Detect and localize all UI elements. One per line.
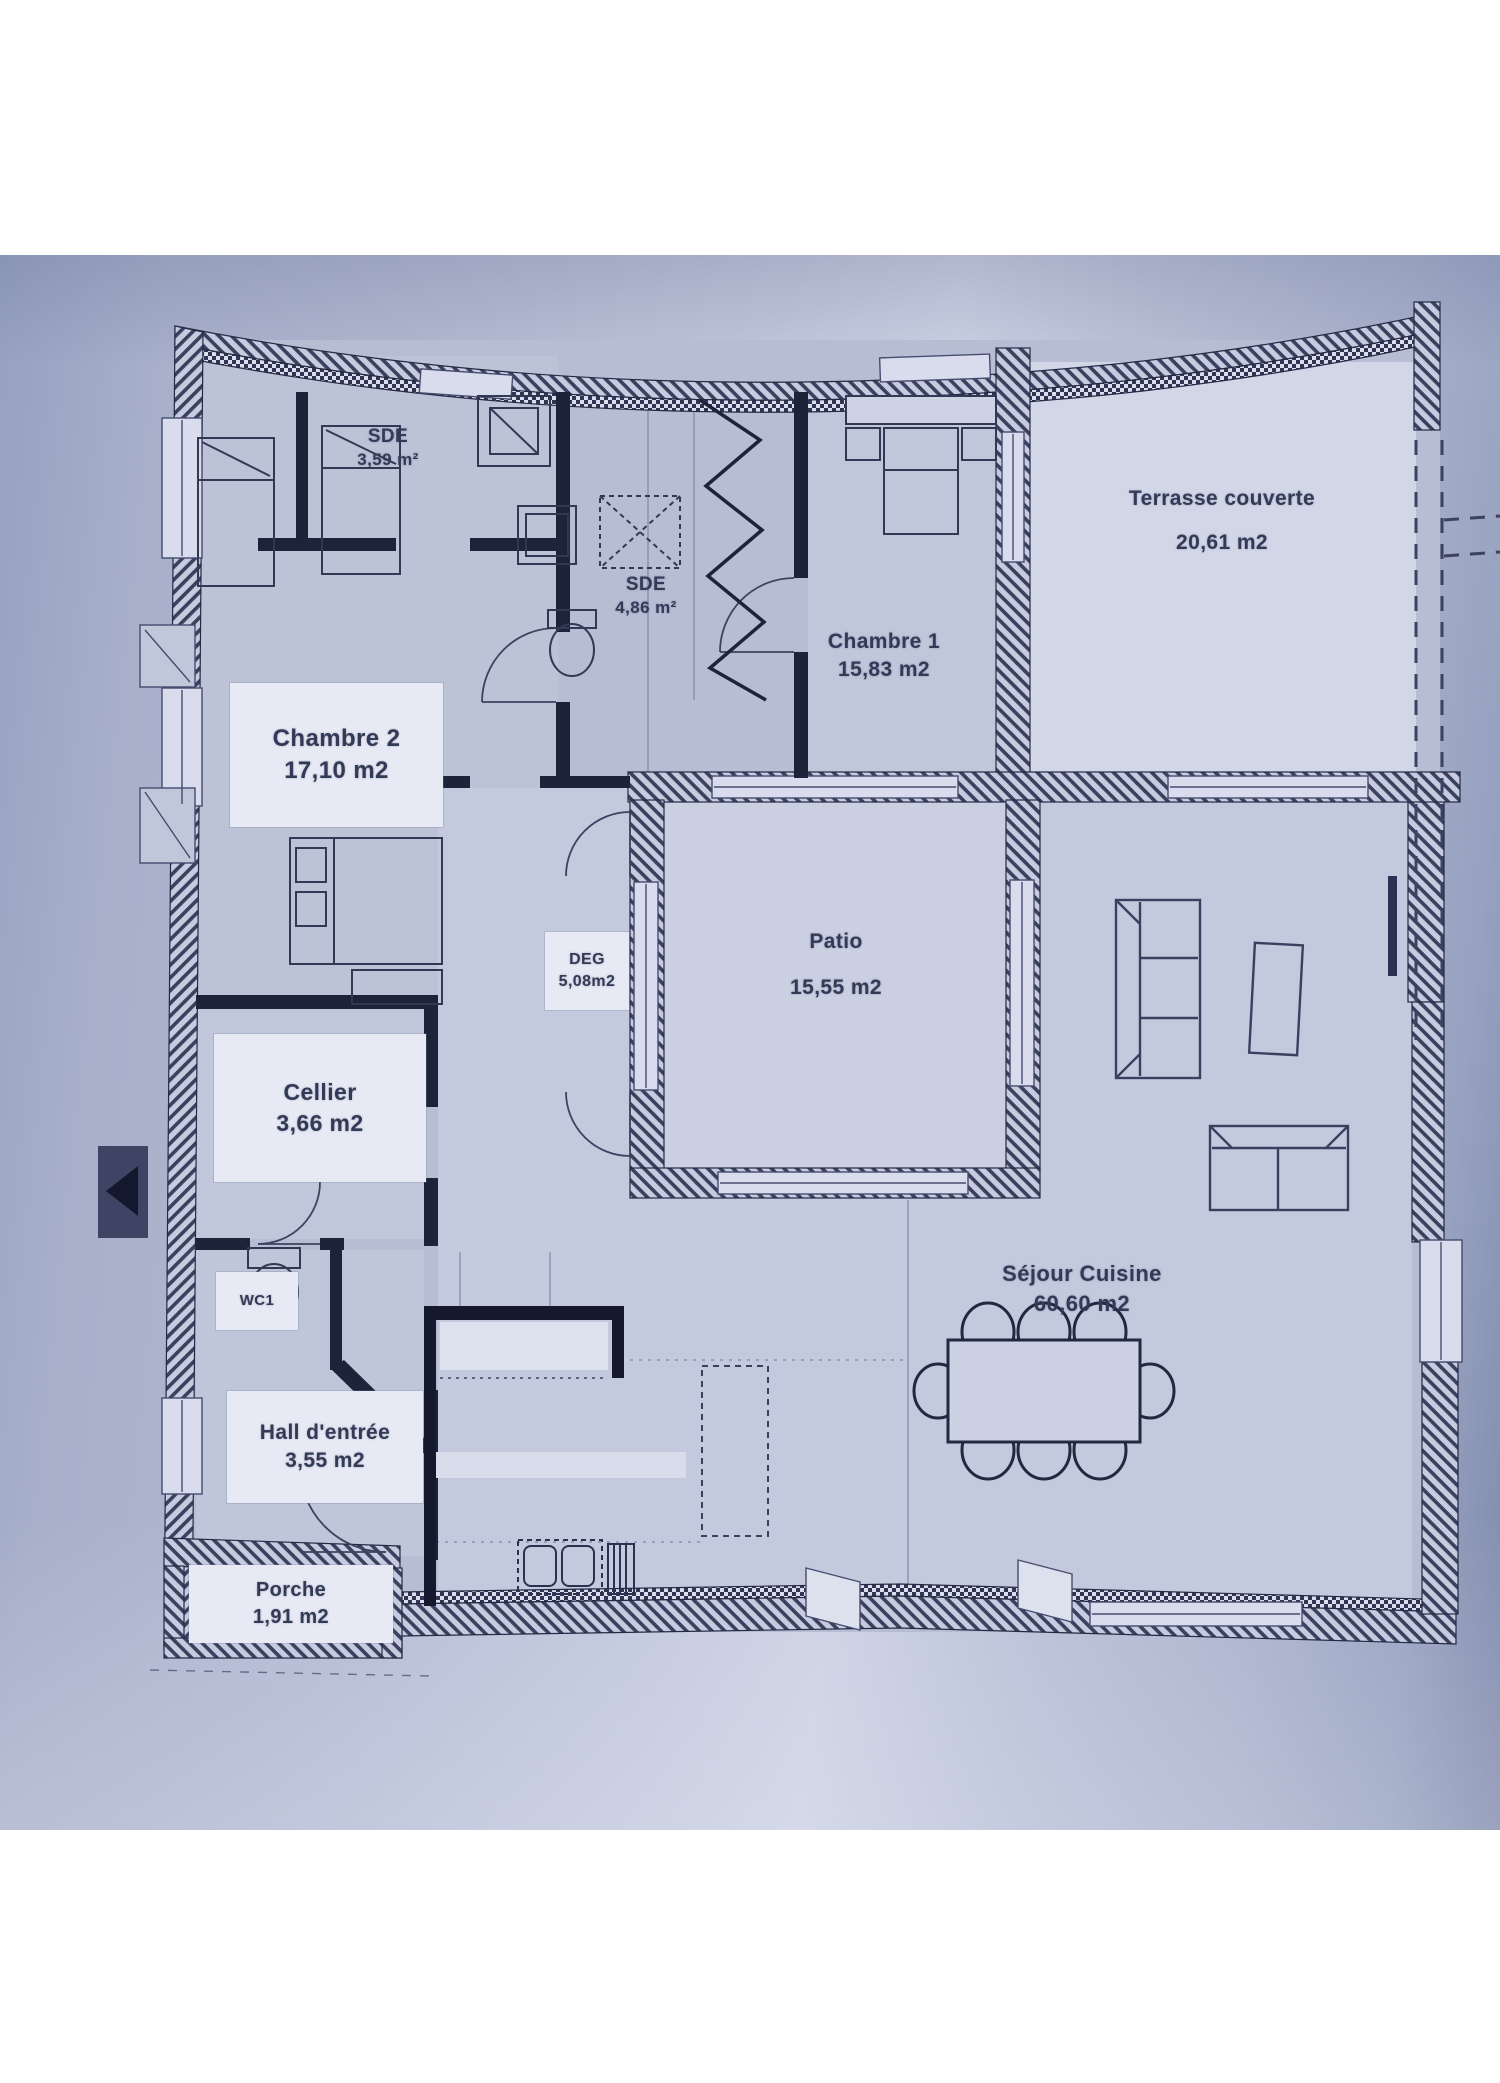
room-area: 3,55 m2 — [285, 1447, 365, 1475]
room-name: SDE — [368, 424, 408, 450]
room-area: 3,66 m2 — [276, 1108, 363, 1139]
room-name: Porche — [256, 1577, 326, 1604]
floor-plan-screenshot: SDE 3,59 m² SDE 4,86 m² Chambre 1 15,83 … — [0, 0, 1500, 2083]
room-label-terrasse: Terrasse couverte 20,61 m2 — [1090, 478, 1354, 564]
room-area: 5,08m2 — [559, 971, 616, 993]
room-label-chambre-1: Chambre 1 15,83 m2 — [792, 626, 976, 686]
room-area: 1,91 m2 — [253, 1604, 329, 1631]
kitchen-cabinet — [440, 1322, 608, 1370]
room-area: 20,61 m2 — [1176, 529, 1268, 557]
room-name: Patio — [809, 928, 862, 956]
kitchen-counter — [436, 1452, 686, 1478]
room-area: 15,55 m2 — [790, 974, 882, 1002]
sliding-door-frame — [1388, 876, 1397, 976]
room-label-patio: Patio 15,55 m2 — [774, 922, 898, 1008]
room-name: Terrasse couverte — [1129, 485, 1315, 513]
entry-arrow-icon — [98, 1146, 148, 1238]
room-label-deg: DEG 5,08m2 — [545, 932, 629, 1010]
room-name: Chambre 2 — [273, 723, 401, 755]
room-name: DEG — [569, 949, 605, 971]
room-label-chambre-2: Chambre 2 17,10 m2 — [230, 683, 443, 827]
room-label-hall: Hall d'entrée 3,55 m2 — [227, 1391, 423, 1503]
room-label-wc1: WC1 — [216, 1272, 298, 1330]
room-area: 60,60 m2 — [1034, 1289, 1130, 1319]
room-area: 17,10 m2 — [284, 755, 389, 787]
room-label-sde-2: SDE 4,86 m² — [580, 568, 712, 624]
room-name: Chambre 1 — [828, 628, 940, 656]
room-label-cellier: Cellier 3,66 m2 — [214, 1034, 426, 1182]
room-label-sde-1: SDE 3,59 m² — [322, 420, 454, 476]
room-label-sejour-cuisine: Séjour Cuisine 60,60 m2 — [950, 1250, 1214, 1328]
room-name: WC1 — [240, 1291, 275, 1311]
room-name: SDE — [626, 572, 666, 598]
room-area: 15,83 m2 — [838, 656, 930, 684]
room-area: 4,86 m² — [615, 597, 676, 620]
room-name: Séjour Cuisine — [1002, 1259, 1162, 1289]
room-label-porche: Porche 1,91 m2 — [189, 1565, 393, 1643]
room-name: Cellier — [283, 1077, 356, 1108]
room-area: 3,59 m² — [357, 449, 418, 472]
room-name: Hall d'entrée — [260, 1419, 390, 1447]
